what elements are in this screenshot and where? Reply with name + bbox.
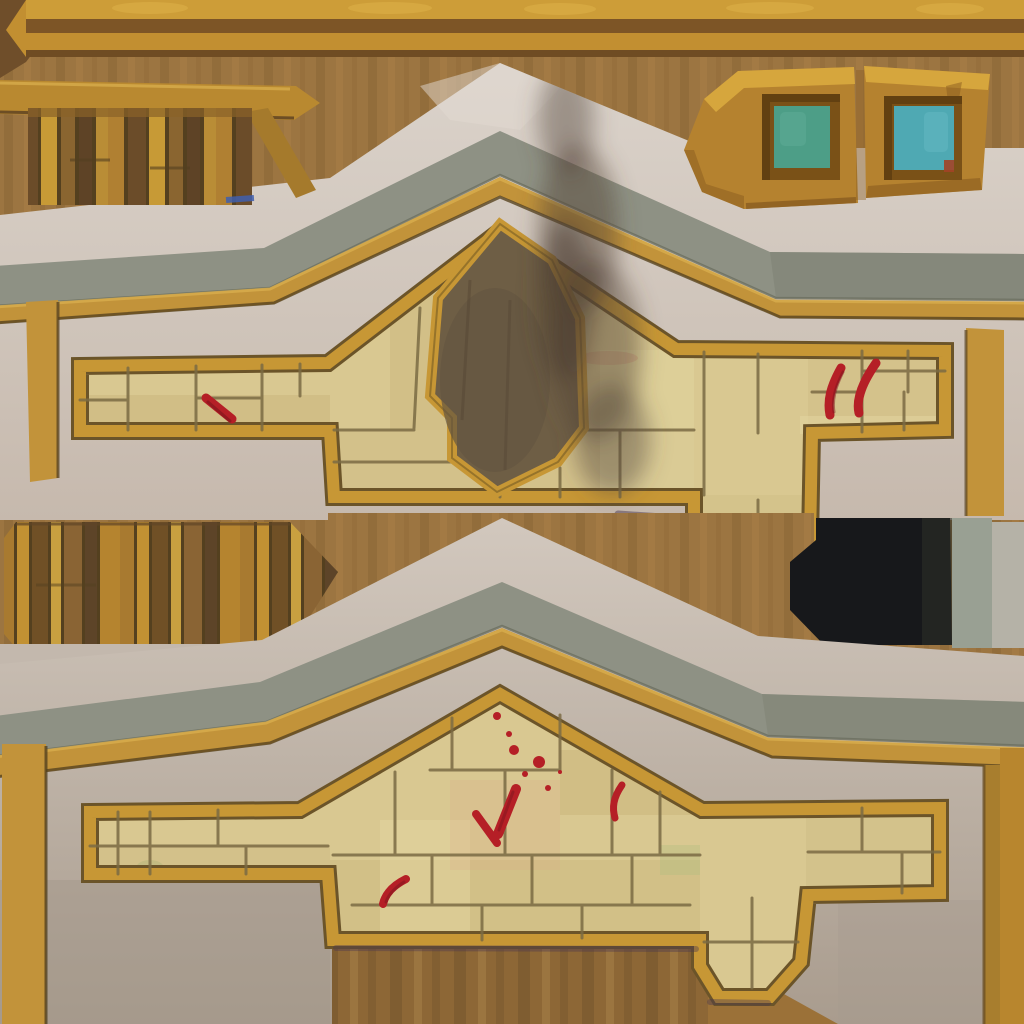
upper-left-plank-fence — [28, 108, 252, 205]
texture-canvas — [0, 0, 1024, 1024]
plaster-shade-br — [838, 900, 984, 1024]
glass-highlight — [924, 112, 948, 152]
upper-left-gold-post — [26, 300, 58, 482]
glass-highlight — [780, 112, 806, 146]
plank-top-cap — [28, 108, 252, 117]
gray-band-inner — [952, 518, 992, 648]
black-panel — [790, 518, 1024, 648]
lower-right-gold-line — [984, 765, 1000, 1024]
upper-right-gold-post — [966, 328, 1004, 516]
red-sliver — [944, 160, 954, 172]
lower-left-gold-post — [2, 744, 46, 1024]
texture-sheet — [0, 0, 1024, 1024]
black-panel-sheen — [922, 518, 952, 645]
gray-band-outer — [992, 522, 1024, 648]
window-panel-right — [864, 66, 990, 198]
gray-cap-shade — [770, 252, 1024, 300]
under-wall-wood — [332, 946, 708, 1024]
top-wooden-beam — [6, 0, 1024, 57]
plaster-shade-bl — [0, 880, 330, 1024]
lower-right-gold-edge — [1000, 748, 1024, 1024]
